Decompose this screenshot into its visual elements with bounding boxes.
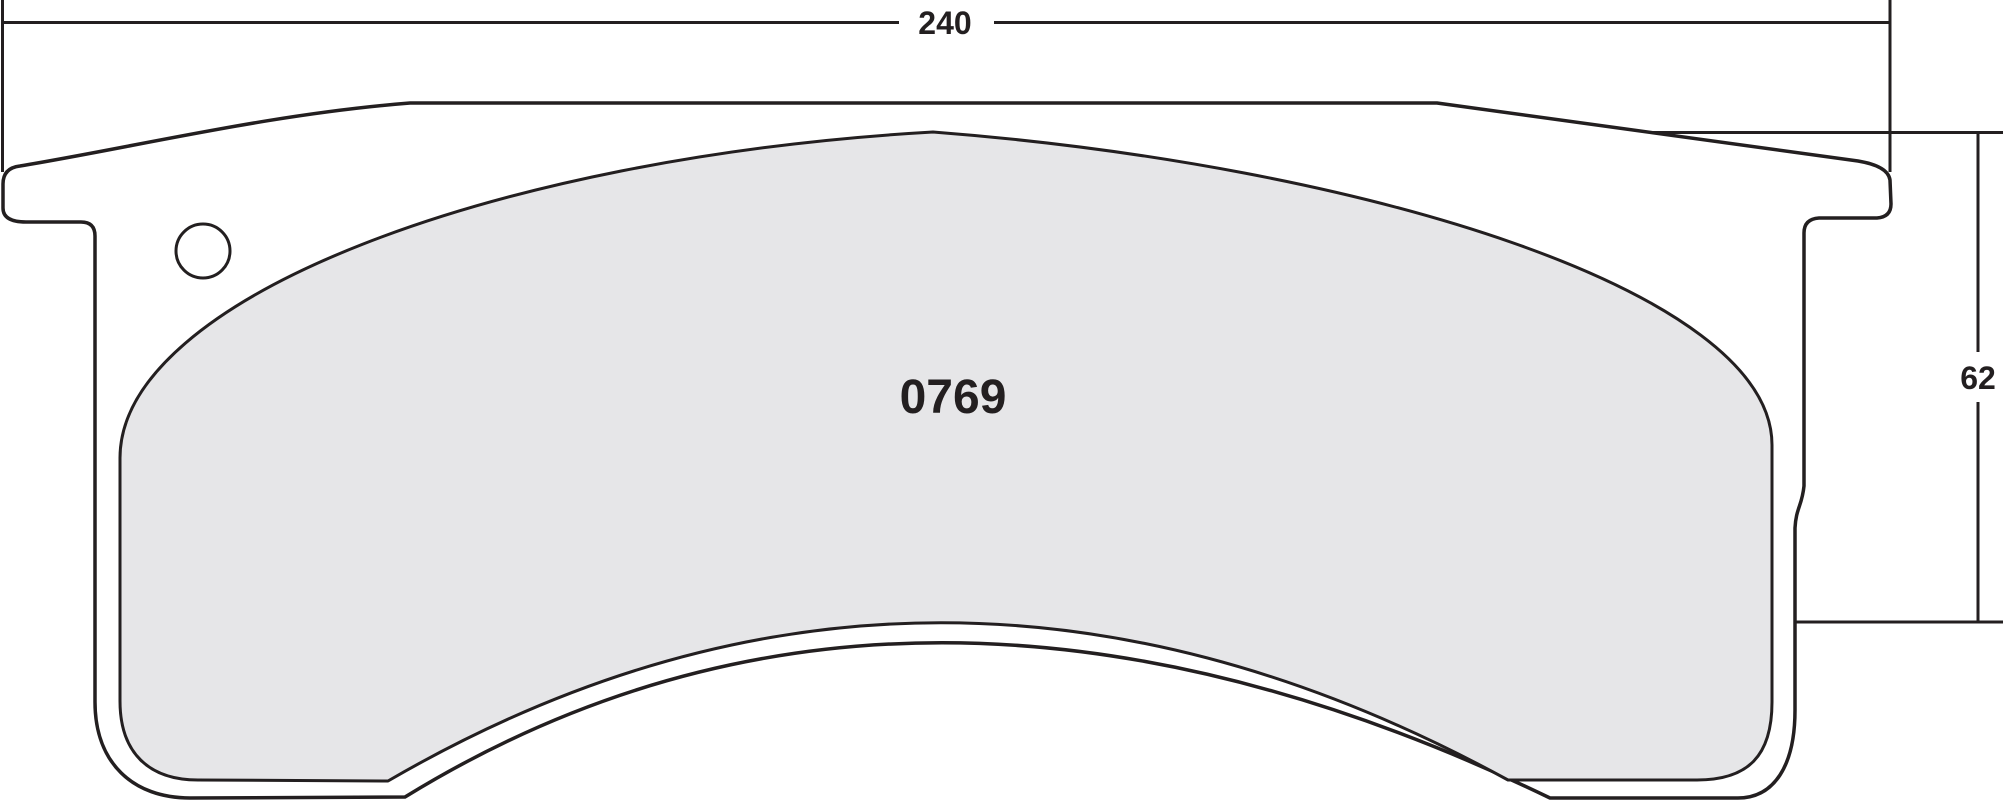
drawing-canvas: 240 62 0769 bbox=[0, 0, 2003, 801]
height-dimension-label: 62 bbox=[1960, 360, 1996, 396]
plate-hole bbox=[176, 224, 230, 278]
brake-pad-technical-drawing: 240 62 0769 bbox=[0, 0, 2003, 801]
width-dimension-label: 240 bbox=[918, 5, 971, 41]
part-number-label: 0769 bbox=[900, 371, 1007, 424]
